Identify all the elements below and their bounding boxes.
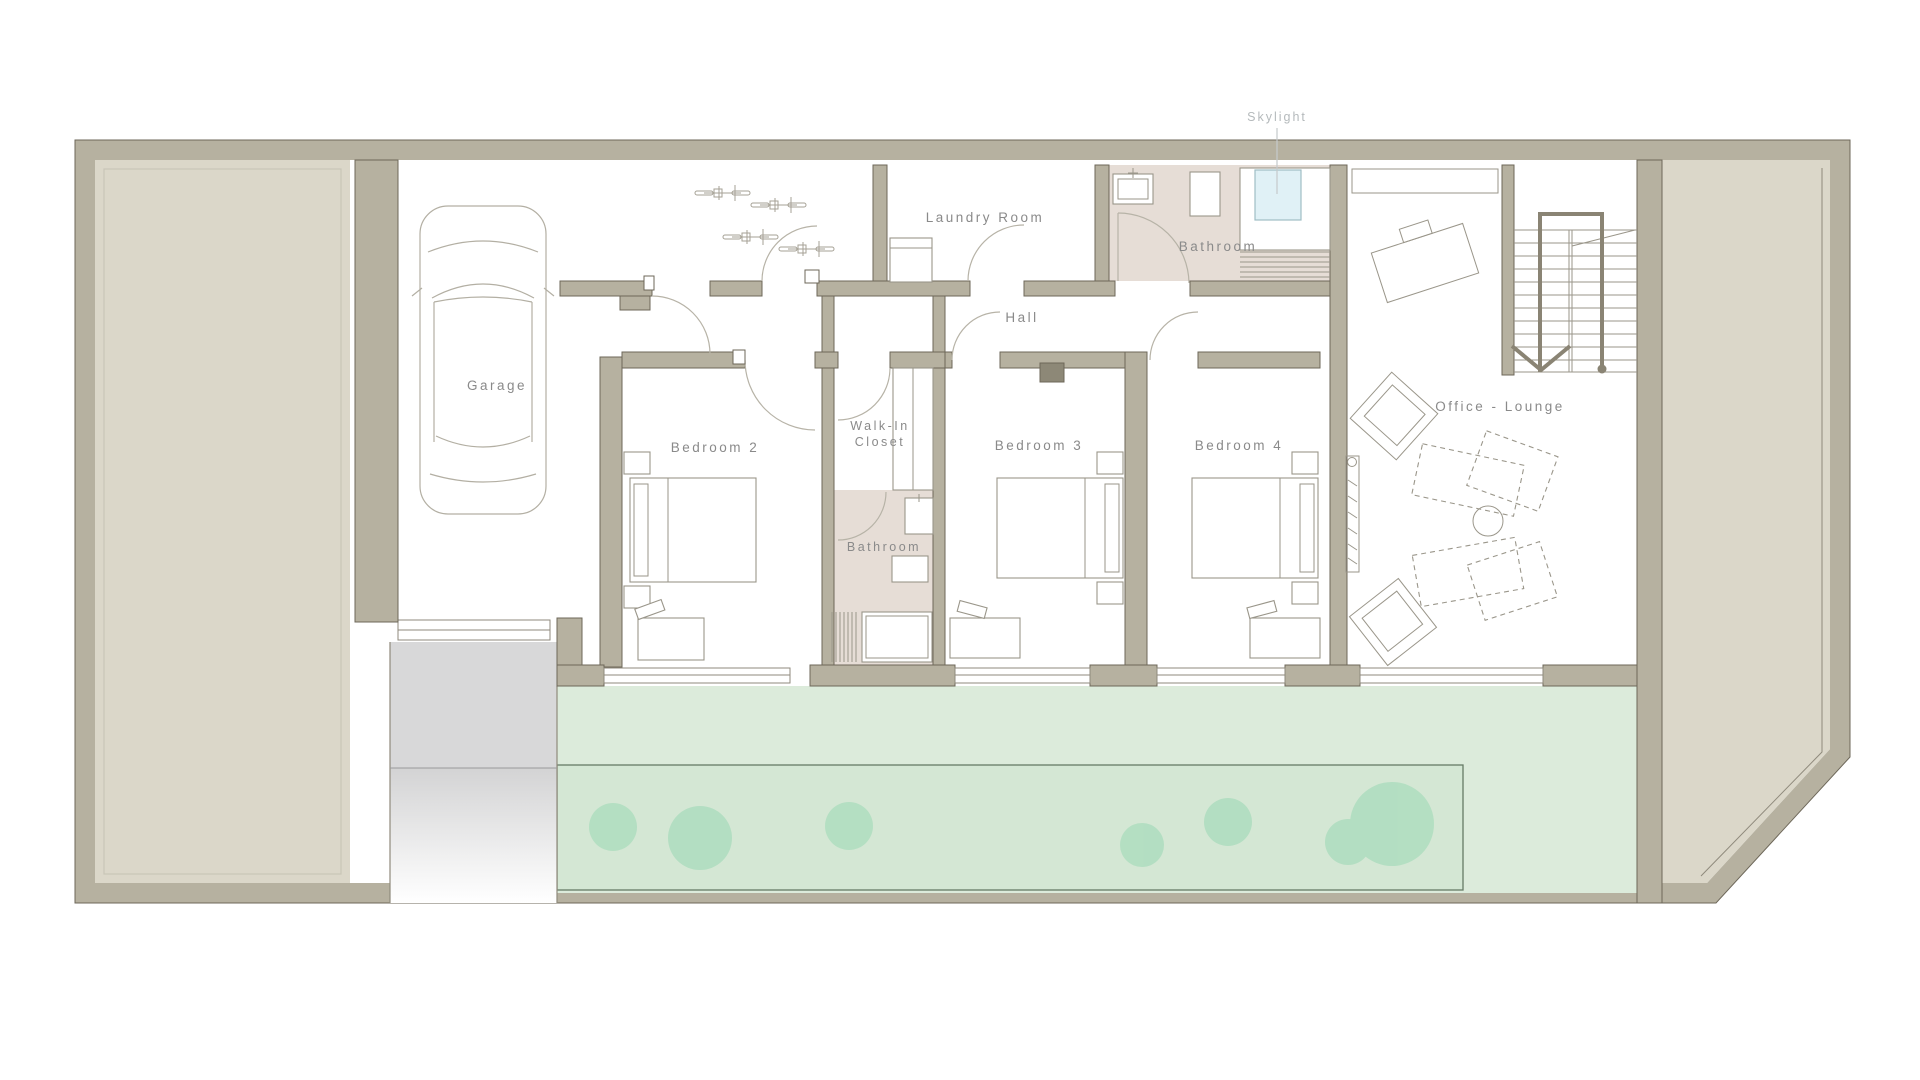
floor-plan-canvas: Skylight Garage Laundry Room Bathroom Ha… (0, 0, 1920, 1080)
south-windows (604, 668, 1543, 683)
tree (1120, 823, 1164, 867)
tree (1204, 798, 1252, 846)
nightstand (1097, 452, 1123, 474)
garage-label: Garage (467, 378, 527, 393)
sink-icon (905, 498, 933, 534)
bedroom-2-label: Bedroom 2 (671, 440, 760, 455)
bed-icon (630, 478, 756, 582)
tree (589, 803, 637, 851)
door-jamb (805, 270, 819, 283)
tree (825, 802, 873, 850)
bathtub-icon (862, 612, 932, 662)
desk-icon (950, 618, 1020, 658)
walk-in-closet-label-line1: Walk-In (850, 419, 909, 433)
hall-label: Hall (1005, 310, 1038, 325)
desk-icon (1250, 618, 1320, 658)
walk-in-closet-label-line2: Closet (855, 435, 905, 449)
shower-grate (832, 612, 856, 662)
desk-icon (638, 618, 704, 660)
toilet-icon (892, 556, 928, 582)
garage-door (398, 620, 550, 640)
tree (668, 806, 732, 870)
bathroom-middle-label: Bathroom (847, 540, 921, 554)
door-jamb (733, 350, 745, 364)
driveway (390, 642, 557, 903)
toilet-icon (1190, 172, 1220, 216)
skylight-label: Skylight (1247, 110, 1307, 124)
bathroom-top-label: Bathroom (1179, 239, 1258, 254)
tree (1350, 782, 1434, 866)
bed-icon (1192, 478, 1318, 578)
nightstand (1292, 452, 1318, 474)
bedroom-3-label: Bedroom 3 (995, 438, 1084, 453)
laundry-room-label: Laundry Room (926, 210, 1045, 225)
washing-machine-icon (890, 238, 932, 282)
right-side-yard (1662, 160, 1830, 883)
nightstand (1292, 582, 1318, 604)
office-lounge-label: Office - Lounge (1435, 399, 1565, 414)
nightstand (624, 452, 650, 474)
duct-column (1040, 363, 1064, 382)
bedroom-4-label: Bedroom 4 (1195, 438, 1284, 453)
bed-icon (997, 478, 1123, 578)
nightstand (1097, 582, 1123, 604)
door-jamb (644, 276, 654, 290)
left-side-yard (95, 160, 350, 883)
skylight-window (1255, 170, 1301, 220)
